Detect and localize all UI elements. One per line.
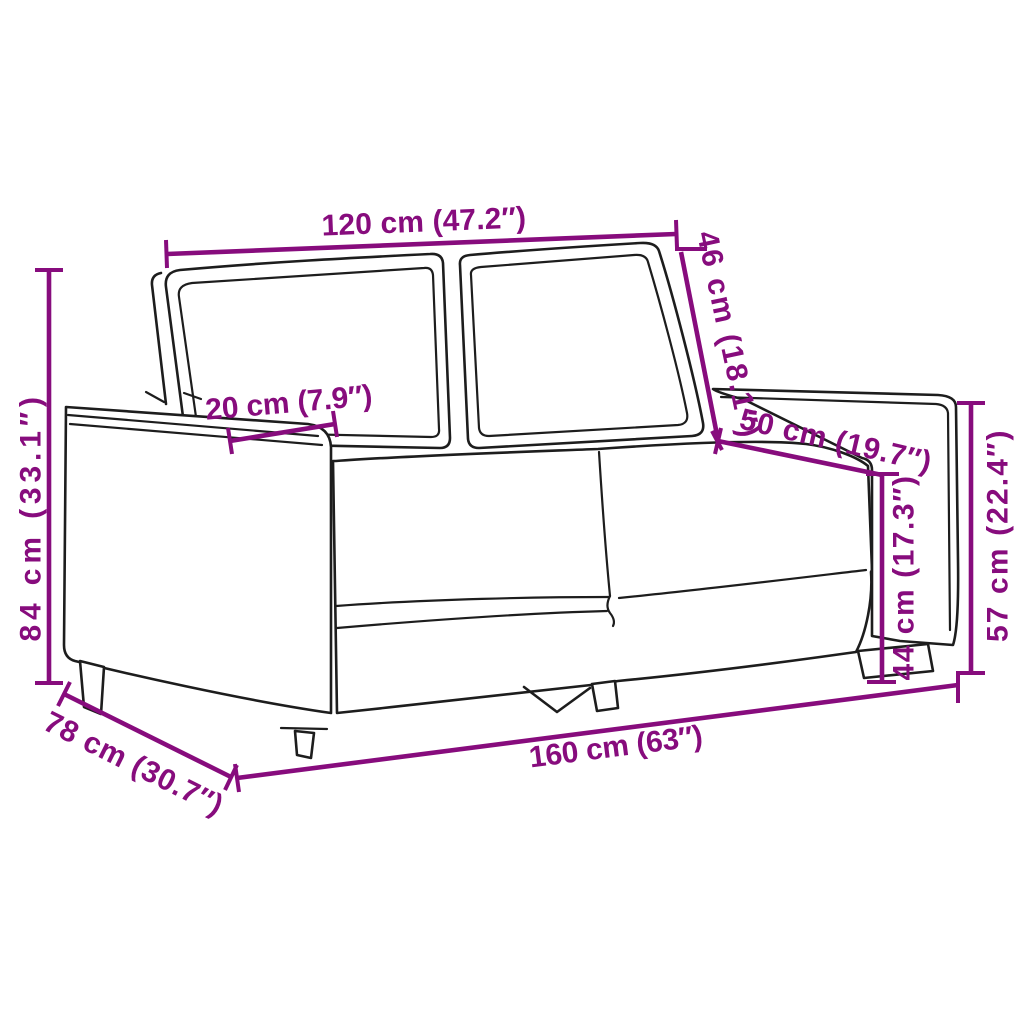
sofa-seat-base [333, 442, 872, 713]
diagram-canvas: 120 cm (47.2″) 46 cm (18.1″) 20 cm (7.9″… [0, 0, 1024, 1024]
base-edge-under-arm [281, 728, 327, 729]
sofa-foot-front-middle [592, 681, 618, 711]
dimension-total-height: 84 cm (33.1″) [15, 270, 64, 683]
sofa-foot-front-left [295, 731, 314, 758]
dimension-label-armrest-height: 57 cm (22.4″) [982, 430, 1015, 642]
dimension-tick [235, 764, 239, 792]
dimension-total-depth: 78 cm (30.7″) [38, 682, 237, 822]
dimension-label-total-height: 84 cm (33.1″) [15, 397, 48, 642]
sofa-back-frame-edge [152, 273, 166, 404]
sofa-line-art [64, 243, 958, 758]
sofa-dimension-diagram: 120 cm (47.2″) 46 cm (18.1″) 20 cm (7.9″… [0, 0, 1024, 1024]
dimension-tick [166, 240, 167, 268]
dimension-armrest-height: 57 cm (22.4″) [956, 403, 1015, 673]
dimension-label-back-width: 120 cm (47.2″) [321, 201, 527, 242]
back-frame-crease-1 [146, 392, 164, 402]
sofa-back-cushion-right [460, 243, 703, 448]
dimension-tick [676, 220, 677, 248]
dimension-label-seat-height: 44 cm (17.3″) [888, 476, 921, 681]
